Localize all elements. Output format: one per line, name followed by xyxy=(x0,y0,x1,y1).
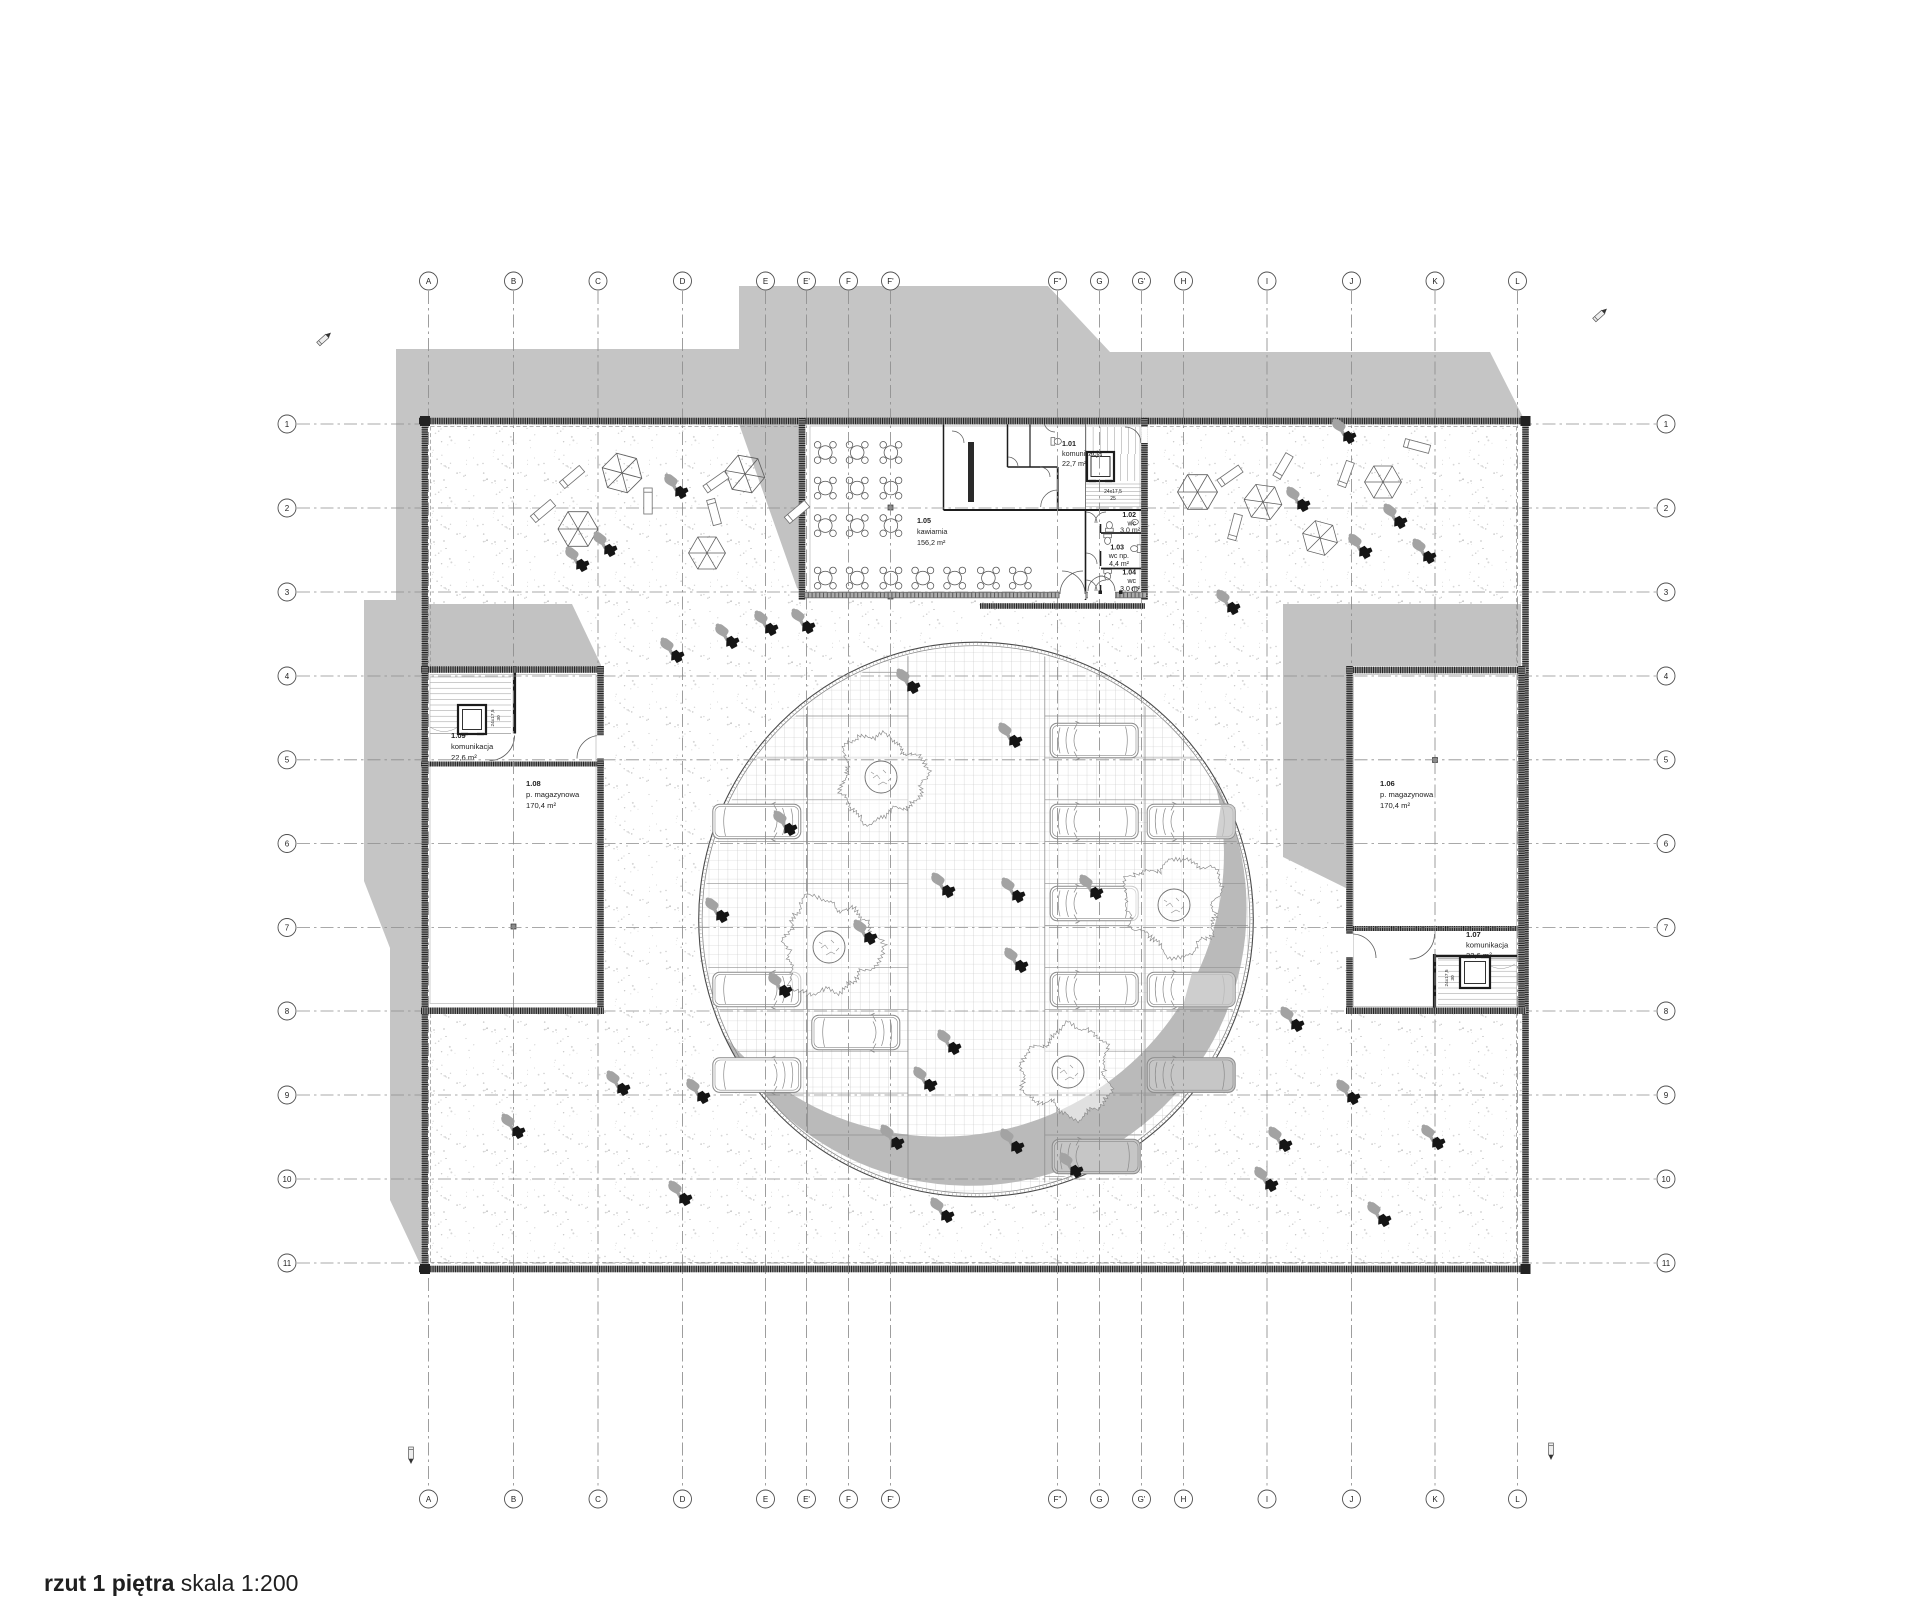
svg-text:1.02: 1.02 xyxy=(1122,512,1136,519)
svg-text:D: D xyxy=(680,277,686,286)
svg-text:11: 11 xyxy=(283,1259,292,1268)
svg-text:1: 1 xyxy=(285,420,290,429)
svg-text:E': E' xyxy=(803,277,810,286)
svg-text:4,4 m²: 4,4 m² xyxy=(1109,561,1130,568)
svg-text:H: H xyxy=(1181,1495,1187,1504)
svg-text:30: 30 xyxy=(1450,975,1456,981)
svg-text:3: 3 xyxy=(285,588,290,597)
svg-text:K: K xyxy=(1432,277,1438,286)
svg-text:5: 5 xyxy=(285,756,290,765)
svg-text:p. magazynowa: p. magazynowa xyxy=(526,790,580,799)
svg-text:11: 11 xyxy=(1662,1259,1671,1268)
svg-text:F: F xyxy=(846,277,851,286)
svg-text:p. magazynowa: p. magazynowa xyxy=(1380,790,1434,799)
svg-text:F'': F'' xyxy=(1054,1495,1062,1504)
svg-text:7: 7 xyxy=(285,923,290,932)
svg-text:rzut 1 piętra skala 1:200: rzut 1 piętra skala 1:200 xyxy=(44,1570,298,1596)
svg-text:komunikacja: komunikacja xyxy=(1466,941,1509,950)
svg-text:C: C xyxy=(595,1495,601,1504)
svg-text:22,7 m²: 22,7 m² xyxy=(1062,459,1087,468)
svg-text:A: A xyxy=(426,1495,432,1504)
svg-text:156,2 m²: 156,2 m² xyxy=(917,538,946,547)
svg-text:10: 10 xyxy=(1662,1175,1671,1184)
svg-text:1.01: 1.01 xyxy=(1062,439,1076,448)
svg-text:3: 3 xyxy=(1664,588,1669,597)
svg-text:3,0 m²: 3,0 m² xyxy=(1120,528,1141,535)
svg-text:1.09: 1.09 xyxy=(451,731,466,740)
svg-text:D: D xyxy=(680,1495,686,1504)
svg-text:2: 2 xyxy=(1664,504,1669,513)
svg-text:9: 9 xyxy=(1664,1091,1669,1100)
svg-text:1.03: 1.03 xyxy=(1110,545,1124,552)
svg-text:1.06: 1.06 xyxy=(1380,779,1395,788)
svg-text:F': F' xyxy=(887,1495,894,1504)
svg-text:G': G' xyxy=(1138,277,1146,286)
svg-text:5: 5 xyxy=(1664,756,1669,765)
svg-text:6: 6 xyxy=(1664,839,1669,848)
svg-text:2: 2 xyxy=(285,504,290,513)
svg-text:E: E xyxy=(763,277,768,286)
svg-text:4: 4 xyxy=(1664,672,1669,681)
svg-text:I: I xyxy=(1266,1495,1268,1504)
svg-text:J: J xyxy=(1350,1495,1354,1504)
svg-text:1: 1 xyxy=(1664,420,1669,429)
svg-text:170,4 m²: 170,4 m² xyxy=(526,801,556,810)
svg-text:kawiarnia: kawiarnia xyxy=(917,527,947,536)
svg-text:6: 6 xyxy=(285,839,290,848)
svg-text:B: B xyxy=(511,277,516,286)
svg-text:1.04: 1.04 xyxy=(1122,570,1136,577)
svg-text:7: 7 xyxy=(1664,923,1669,932)
svg-text:9: 9 xyxy=(285,1091,290,1100)
svg-text:22,6 m²: 22,6 m² xyxy=(451,753,477,762)
svg-text:wc np.: wc np. xyxy=(1108,553,1129,560)
svg-text:J: J xyxy=(1350,277,1354,286)
svg-text:1.07: 1.07 xyxy=(1466,930,1481,939)
svg-text:G: G xyxy=(1096,277,1102,286)
svg-text:L: L xyxy=(1515,277,1520,286)
svg-text:24x17,5: 24x17,5 xyxy=(490,709,496,726)
svg-text:A: A xyxy=(426,277,432,286)
svg-text:4: 4 xyxy=(285,672,290,681)
svg-text:1.05: 1.05 xyxy=(917,516,931,525)
svg-text:G: G xyxy=(1096,1495,1102,1504)
svg-text:komunikacja: komunikacja xyxy=(451,742,494,751)
svg-text:22,6 m²: 22,6 m² xyxy=(1466,951,1492,960)
svg-text:I: I xyxy=(1266,277,1268,286)
svg-text:8: 8 xyxy=(1664,1007,1669,1016)
svg-text:K: K xyxy=(1432,1495,1438,1504)
svg-text:170,4 m²: 170,4 m² xyxy=(1380,801,1410,810)
svg-text:wc: wc xyxy=(1126,578,1136,585)
svg-text:B: B xyxy=(511,1495,516,1504)
svg-text:24x17,5: 24x17,5 xyxy=(1104,489,1122,495)
svg-text:F: F xyxy=(846,1495,851,1504)
svg-text:wc: wc xyxy=(1126,521,1136,528)
svg-text:F'': F'' xyxy=(1054,277,1062,286)
svg-text:F': F' xyxy=(887,277,894,286)
svg-text:8: 8 xyxy=(285,1007,290,1016)
svg-text:L: L xyxy=(1515,1495,1520,1504)
svg-text:C: C xyxy=(595,277,601,286)
svg-text:E: E xyxy=(763,1495,768,1504)
svg-text:komunikacja: komunikacja xyxy=(1062,449,1102,458)
svg-text:24x17,5: 24x17,5 xyxy=(1444,969,1450,986)
svg-text:1.08: 1.08 xyxy=(526,779,541,788)
svg-text:H: H xyxy=(1181,277,1187,286)
svg-text:E': E' xyxy=(803,1495,810,1504)
svg-text:30: 30 xyxy=(496,715,502,721)
svg-text:G': G' xyxy=(1138,1495,1146,1504)
svg-text:10: 10 xyxy=(283,1175,292,1184)
svg-text:25: 25 xyxy=(1110,496,1116,502)
